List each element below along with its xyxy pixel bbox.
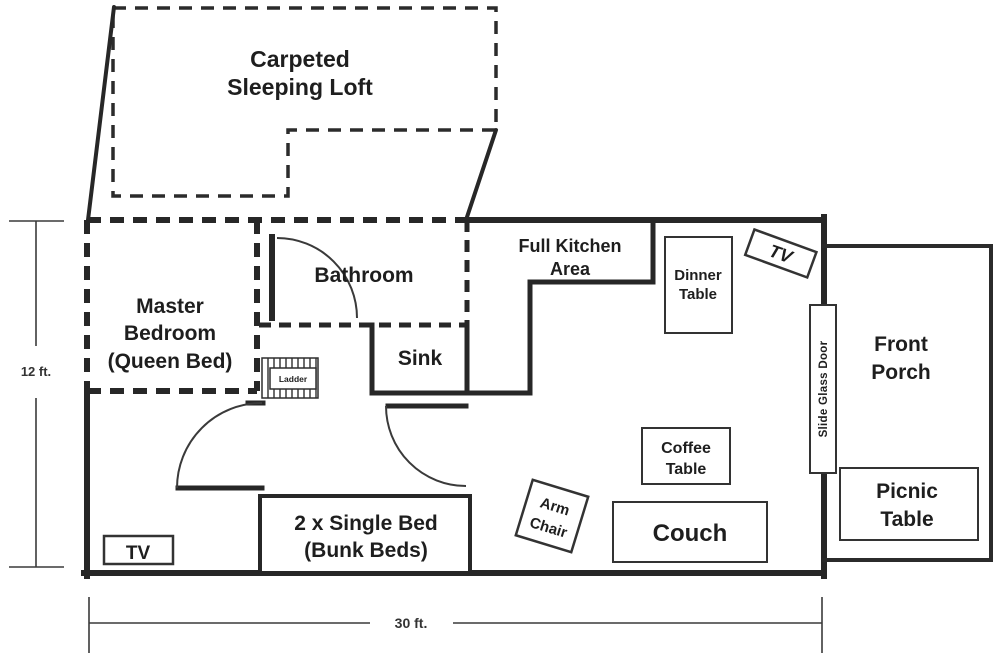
bathroom-label: Bathroom [314,264,413,287]
slide-glass-door-label: Slide Glass Door [818,340,830,437]
dinner-table-label-line1: Dinner [674,267,722,284]
porch-label-line1: Front [874,333,928,356]
dimension-width-label: 30 ft. [395,615,428,631]
couch-label: Couch [653,520,728,547]
kitchen: Full Kitchen Area [519,220,654,393]
front-porch: Front Porch Picnic Table [824,246,991,560]
floor-plan: Carpeted Sleeping Loft Master Bedroom (Q… [0,0,1000,661]
sink-room: Sink [372,325,530,393]
arm-chair: Arm Chair [516,480,588,552]
arm-chair-box [516,480,588,552]
master-label-line2: Bedroom [124,322,216,345]
coffee-table-label-line1: Coffee [661,440,711,457]
bunk-beds-label-line2: (Bunk Beds) [304,539,428,562]
loft-slant-left [88,7,114,220]
sleeping-loft: Carpeted Sleeping Loft [88,7,496,220]
bedroom-door-arc [177,403,262,488]
picnic-label-line1: Picnic [876,480,938,503]
floor-plan-canvas: Carpeted Sleeping Loft Master Bedroom (Q… [0,0,1000,661]
porch-label-line2: Porch [871,361,931,384]
bunk-beds-label-line1: 2 x Single Bed [294,512,438,535]
dinner-table-label-line2: Table [679,286,717,303]
master-bedroom: Master Bedroom (Queen Bed) [87,220,257,391]
coffee-table-label-line2: Table [666,461,707,478]
kitchen-label-line1: Full Kitchen [519,236,622,256]
loft-outline [113,8,496,196]
bathroom: Bathroom [259,220,467,325]
interior-doors [177,403,466,488]
furniture: TV Dinner Table Coffee Table Arm Chair C… [104,229,816,573]
tv-living-label: TV [126,543,151,564]
dimension-height: 12 ft. [9,221,64,567]
loft-label-line1: Carpeted [250,46,350,72]
master-label-line1: Master [136,295,204,318]
loft-label-line2: Sleeping Loft [227,74,373,100]
sink-label: Sink [398,347,443,370]
tv-wall: TV [745,229,816,277]
slide-glass-door: Slide Glass Door [810,305,836,473]
dinner-table [665,237,732,333]
kitchen-door-arc [386,406,466,486]
dimension-width: 30 ft. [89,597,822,653]
kitchen-label-line2: Area [550,259,591,279]
ladder: Ladder [262,358,318,398]
dimension-height-label: 12 ft. [21,364,51,379]
master-label-line3: (Queen Bed) [108,350,233,373]
ladder-label: Ladder [279,374,308,384]
loft-slant-right [466,130,496,220]
picnic-label-line2: Table [880,508,933,531]
